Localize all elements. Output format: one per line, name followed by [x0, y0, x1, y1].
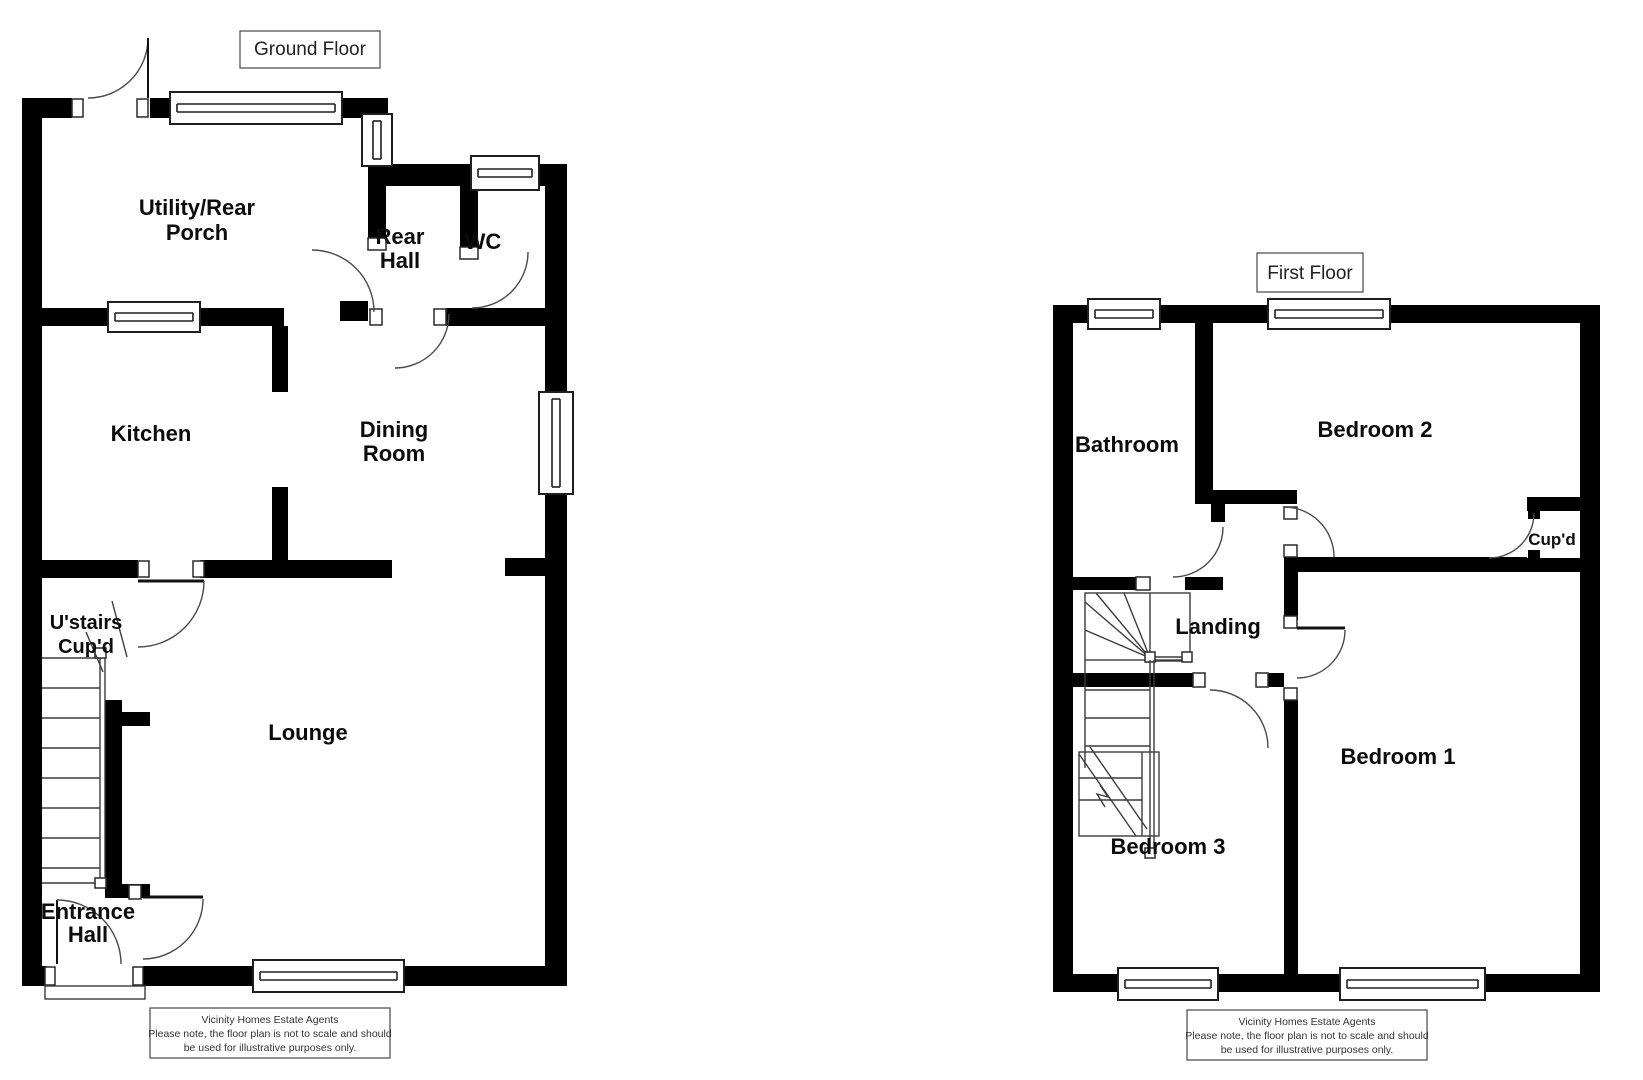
wall-segment: [1528, 550, 1540, 558]
disclaimer-box: Vicinity Homes Estate Agents Please note…: [1185, 1010, 1429, 1060]
svg-text:Vicinity Homes Estate Agents: Vicinity Homes Estate Agents: [1239, 1016, 1376, 1028]
door-jamb: [129, 885, 141, 899]
svg-text:Entrance: Entrance: [41, 899, 135, 924]
wall-segment: [1527, 497, 1580, 511]
door-jamb: [370, 309, 382, 325]
wall-segment: [22, 308, 112, 326]
door-jamb: [1284, 688, 1297, 700]
wall-segment: [22, 966, 47, 986]
svg-text:Vicinity Homes Estate Agents: Vicinity Homes Estate Agents: [202, 1014, 339, 1026]
room-label-wc: WC: [465, 229, 502, 254]
first-floor-plan: First Floor Bathroom Bedroom 2 Cup'd Lan…: [1053, 253, 1600, 1060]
door-jamb: [1284, 616, 1297, 628]
wall-segment: [1527, 558, 1580, 572]
wall-segment: [1298, 557, 1527, 572]
ground-floor-plan: Ground Floor Utility/Rear Porch Rear Hal…: [22, 31, 573, 1058]
room-label-utility: Utility/Rear Porch: [139, 195, 256, 245]
wall-segment: [22, 98, 42, 986]
door-bathroom: [1173, 527, 1223, 577]
window: [108, 302, 200, 332]
door-cupboard: [1489, 513, 1534, 558]
svg-text:Please note, the floor plan is: Please note, the floor plan is not to sc…: [1185, 1030, 1429, 1042]
room-label-landing: Landing: [1175, 614, 1261, 639]
svg-text:Hall: Hall: [68, 922, 108, 947]
door-jamb: [137, 99, 148, 117]
wall-segment: [1211, 504, 1225, 522]
door-jamb: [72, 99, 83, 117]
wall-segment: [1580, 305, 1600, 992]
room-label-bedroom2: Bedroom 2: [1318, 417, 1433, 442]
room-label-stairs-cupboard: U'stairs Cup'd: [50, 612, 123, 658]
room-label-entrance: Entrance Hall: [41, 899, 135, 947]
door-jamb: [1256, 673, 1268, 687]
svg-text:Please note, the floor plan is: Please note, the floor plan is not to sc…: [148, 1028, 392, 1040]
door-kitchen-hall: [138, 581, 204, 647]
wall-segment: [1195, 323, 1213, 504]
wall-segment: [150, 98, 172, 118]
door-rear-exterior: [88, 38, 148, 98]
wall-segment: [1053, 305, 1073, 992]
window: [1088, 299, 1160, 329]
floor-title: First Floor: [1267, 263, 1353, 284]
floor-title: Ground Floor: [254, 39, 367, 60]
window: [1340, 968, 1485, 1000]
door-jamb: [193, 561, 204, 577]
wall-segment: [1195, 490, 1297, 504]
wall-segment: [143, 966, 258, 986]
room-label-dining: Dining Room: [360, 417, 428, 466]
window: [253, 960, 404, 992]
door-jamb: [133, 967, 143, 985]
wall-segment: [1185, 577, 1223, 590]
svg-text:Porch: Porch: [166, 220, 228, 245]
room-label-lounge: Lounge: [268, 720, 347, 745]
wall-segment: [200, 560, 392, 578]
door-jamb: [1284, 545, 1297, 557]
door-jamb: [1193, 673, 1205, 687]
floorplan-canvas: Ground Floor Utility/Rear Porch Rear Hal…: [0, 0, 1643, 1080]
window: [539, 392, 573, 494]
wall-segment: [1284, 557, 1298, 620]
floorplan-drawing: Ground Floor Utility/Rear Porch Rear Hal…: [0, 0, 1643, 1080]
room-label-kitchen: Kitchen: [111, 421, 192, 446]
wall-segment: [1268, 673, 1284, 687]
entrance-step: [45, 986, 145, 999]
svg-text:Utility/Rear: Utility/Rear: [139, 195, 256, 220]
window: [471, 156, 539, 190]
room-label-cupboard: Cup'd: [1528, 530, 1575, 549]
door-wc: [472, 252, 528, 308]
door-bedroom3: [1210, 690, 1268, 748]
window: [362, 114, 392, 166]
room-label-rear-hall: Rear Hall: [376, 224, 425, 273]
wall-segment: [1284, 700, 1298, 974]
wall-segment: [105, 700, 122, 898]
room-label-bathroom: Bathroom: [1075, 432, 1179, 457]
wall-segment: [105, 712, 150, 726]
door-jamb: [45, 967, 55, 985]
svg-text:Dining: Dining: [360, 417, 428, 442]
wall-segment: [1073, 673, 1205, 687]
svg-text:be used for illustrative purpo: be used for illustrative purposes only.: [1221, 1044, 1394, 1056]
wall-segment: [340, 301, 368, 321]
window: [170, 92, 342, 124]
wall-segment: [272, 326, 288, 392]
window: [1268, 299, 1390, 329]
svg-text:Room: Room: [363, 441, 425, 466]
wall-segment: [402, 966, 567, 986]
room-label-bedroom1: Bedroom 1: [1341, 744, 1456, 769]
window: [1118, 968, 1218, 1000]
svg-text:be used for illustrative purpo: be used for illustrative purposes only.: [184, 1042, 357, 1054]
svg-text:U'stairs: U'stairs: [50, 612, 123, 634]
door-jamb: [1136, 577, 1150, 590]
wall-segment: [196, 308, 284, 326]
wall-segment: [505, 558, 567, 576]
door-jamb: [138, 561, 149, 577]
svg-text:Rear: Rear: [376, 224, 425, 249]
door-lounge: [143, 897, 203, 959]
wall-segment: [22, 560, 138, 578]
wall-segment: [272, 487, 288, 560]
door-bedroom1: [1297, 628, 1345, 678]
room-label-bedroom3: Bedroom 3: [1111, 834, 1226, 859]
wall-segment: [22, 98, 72, 118]
disclaimer-box: Vicinity Homes Estate Agents Please note…: [148, 1008, 392, 1058]
door-jamb: [434, 309, 446, 325]
svg-text:Hall: Hall: [380, 248, 420, 273]
svg-text:Cup'd: Cup'd: [58, 636, 114, 658]
